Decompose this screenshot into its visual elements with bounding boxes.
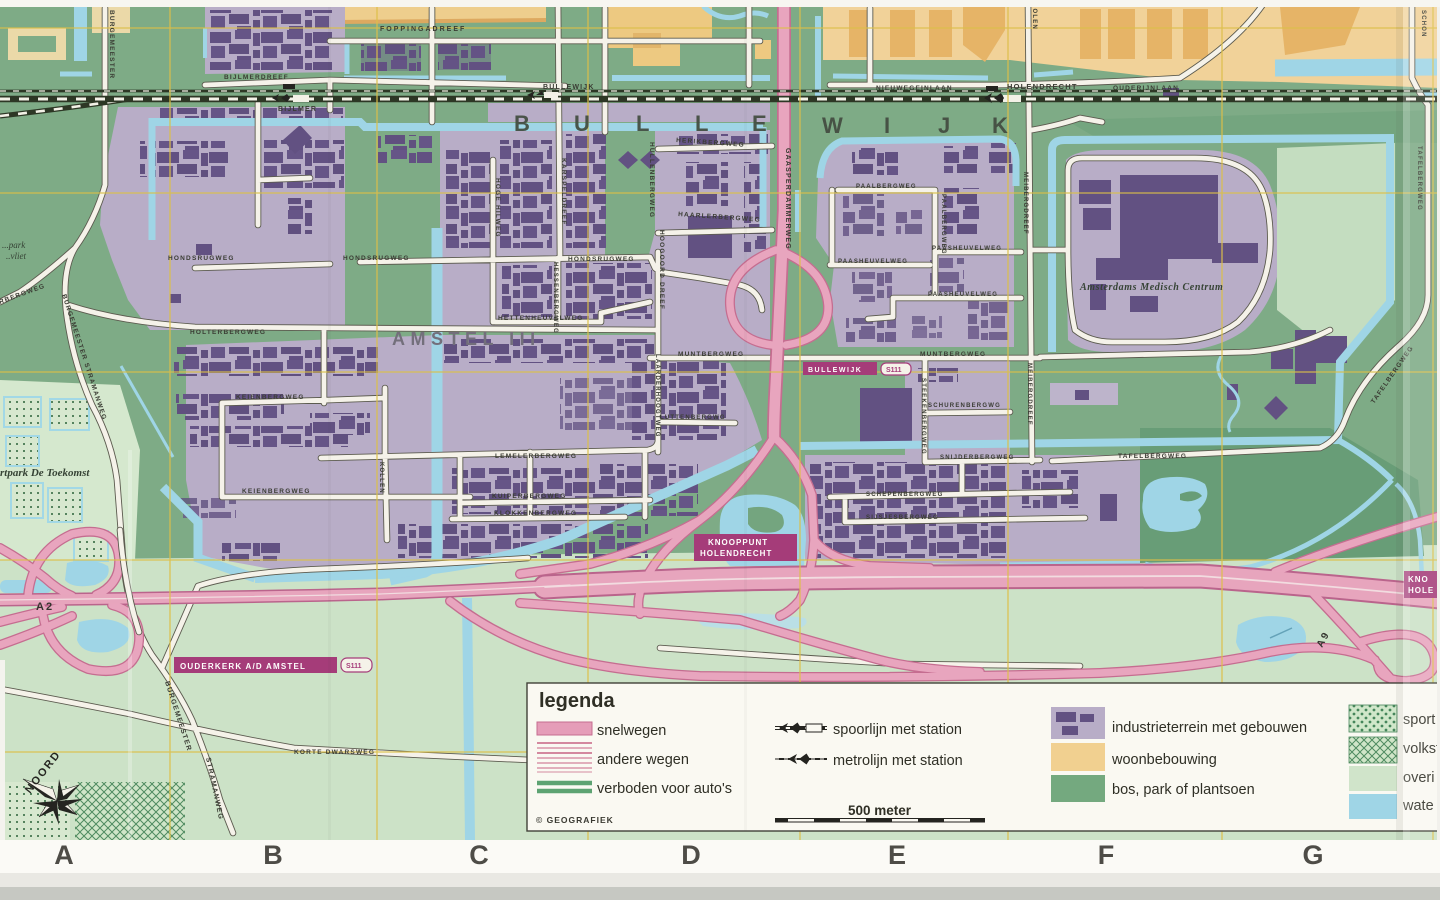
svg-text:D: D (681, 840, 701, 870)
svg-text:A: A (54, 840, 74, 870)
svg-text:E: E (888, 840, 906, 870)
svg-text:B: B (263, 840, 283, 870)
svg-text:G: G (1302, 840, 1323, 870)
svg-text:C: C (469, 840, 489, 870)
svg-text:F: F (1098, 840, 1115, 870)
